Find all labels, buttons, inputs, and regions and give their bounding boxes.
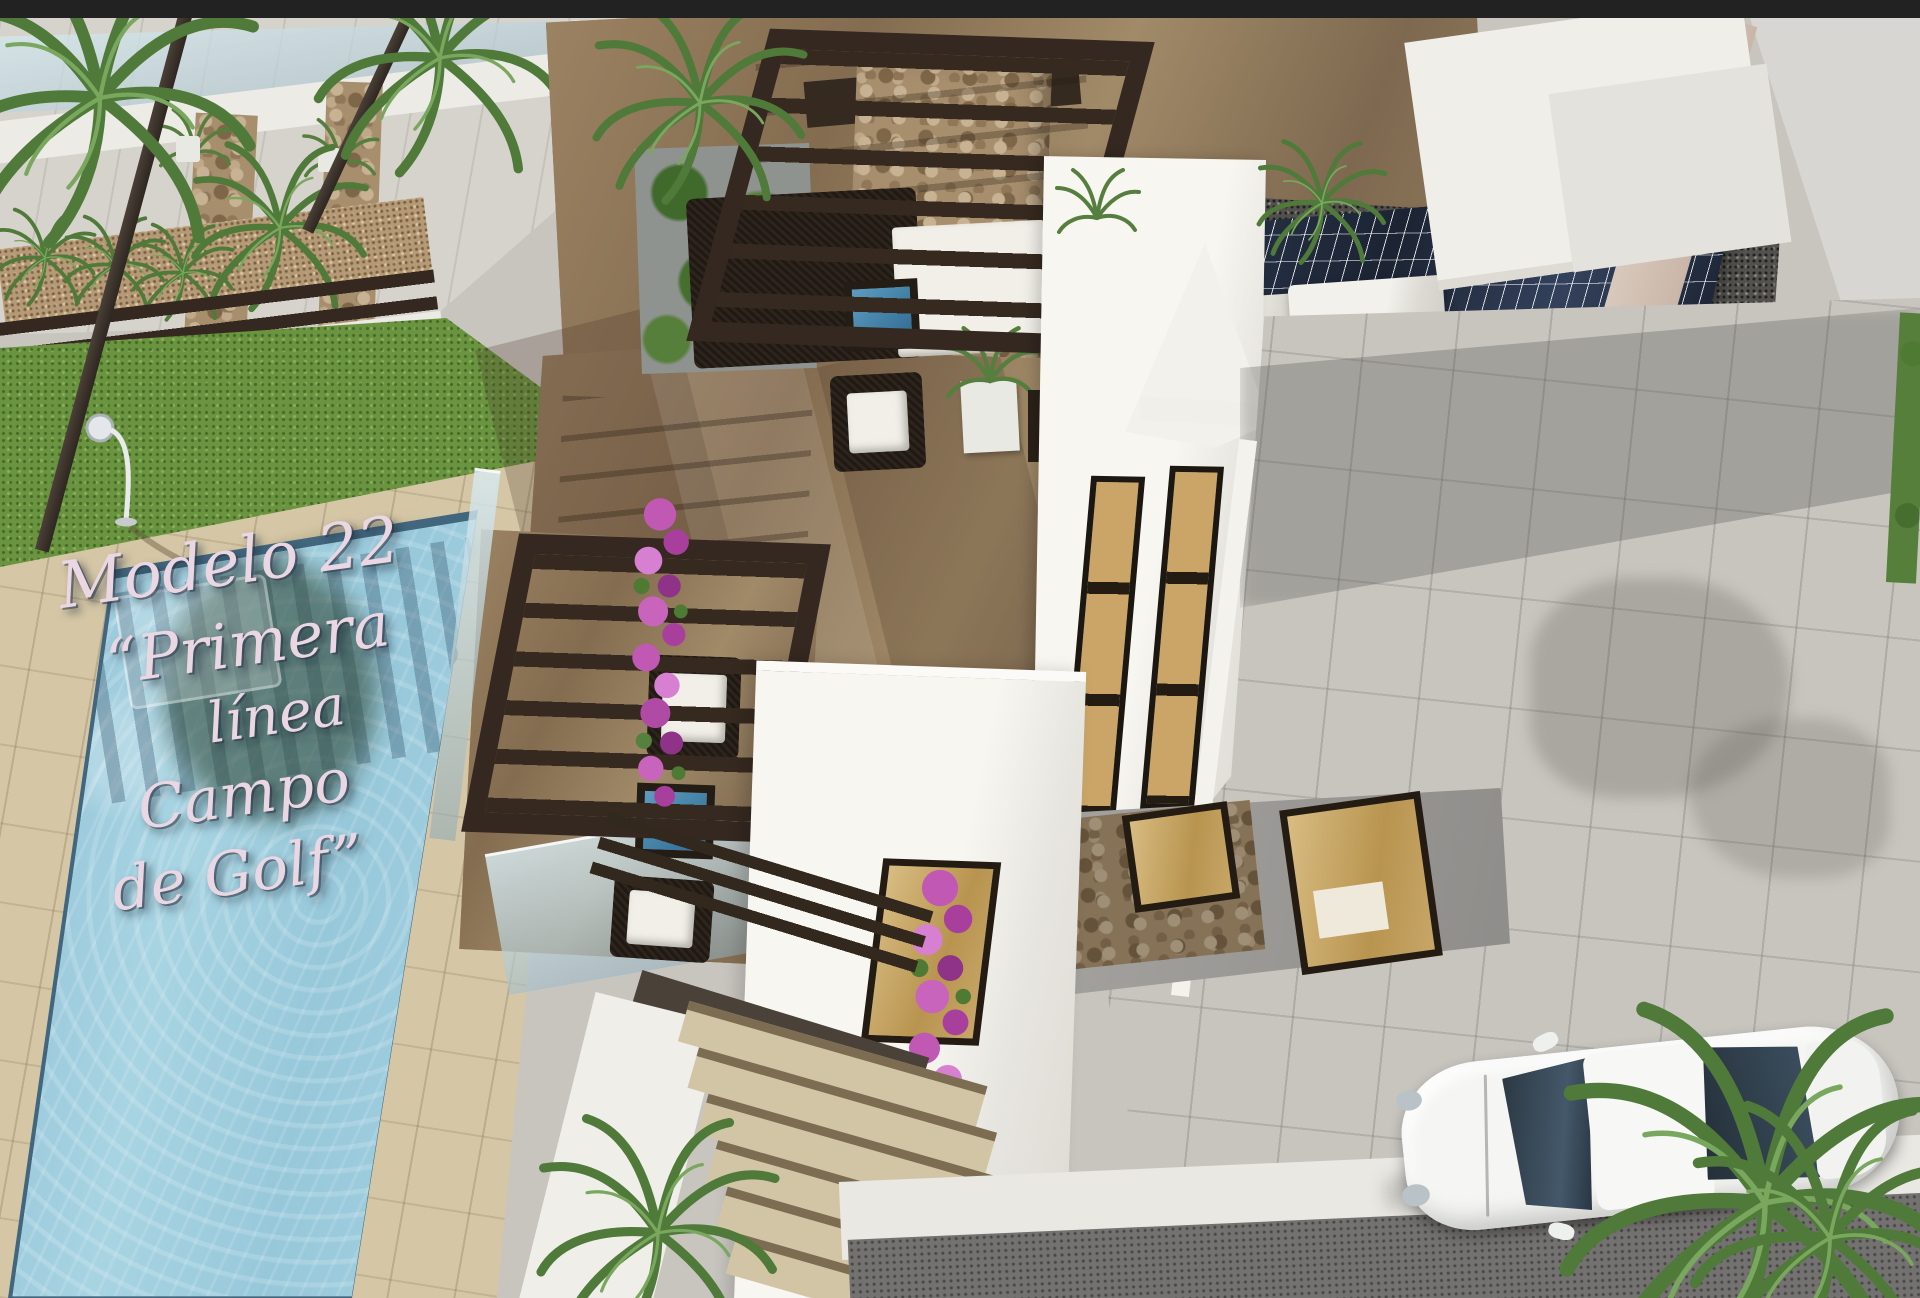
villa-aerial-render: Modelo 22 “Primera línea Campo de Golf” <box>0 18 1920 1298</box>
armchair-cushion <box>846 390 909 453</box>
palm-crown-large <box>1680 1158 1920 1298</box>
palm-crown <box>300 18 580 178</box>
swimming-pool: Modelo 22 “Primera línea Campo de Golf” <box>0 488 530 1298</box>
palm-crown <box>580 18 820 218</box>
palm-sapling <box>528 1148 788 1298</box>
palm-crown <box>0 18 260 248</box>
skylight-window <box>1279 791 1443 975</box>
skylight-sill <box>1313 881 1389 938</box>
rooftop-plant <box>1052 168 1142 268</box>
skylight-window <box>1122 801 1241 913</box>
car-mirror <box>1530 1029 1560 1055</box>
neighbor-roof <box>1549 64 1792 273</box>
bougainvillea <box>600 488 720 818</box>
rooftop-plant <box>1252 138 1392 268</box>
pool-watermark: Modelo 22 “Primera línea Campo de Golf” <box>0 496 475 939</box>
